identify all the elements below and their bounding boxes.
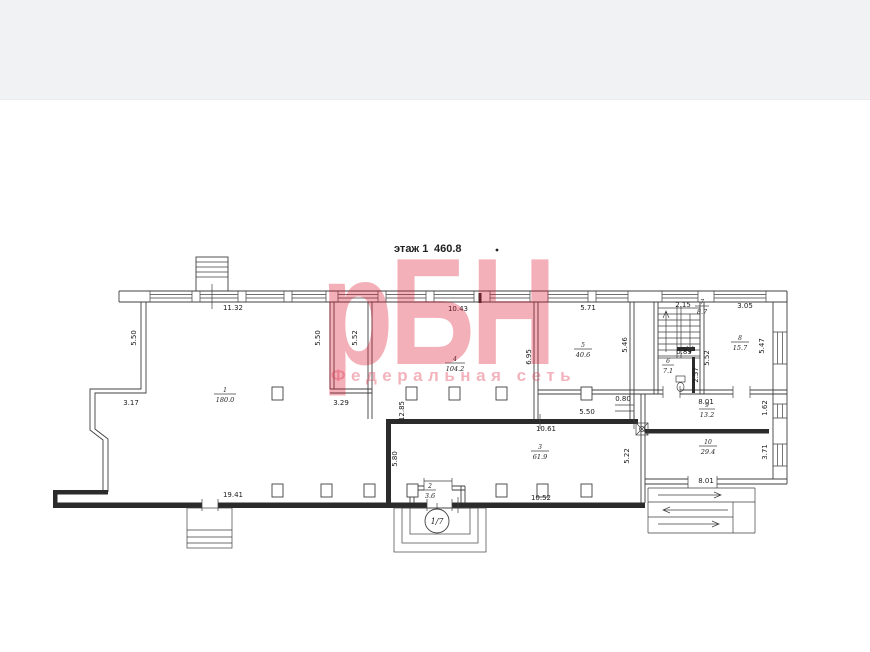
dim: 0.89 [676,348,692,356]
dim: 12.85 [398,401,406,421]
dim: 5.47 [758,338,766,354]
svg-text:2: 2 [427,483,432,490]
dim: 8.01 [698,477,714,485]
toilet-icon [676,376,685,392]
section-marker-label: 1/7 [431,517,445,526]
room-label-1: 1 180.0 [214,387,236,404]
dim: 2.57 [692,367,700,383]
interior-walls [330,291,787,503]
svg-text:5: 5 [581,342,585,349]
hatched-wall [645,429,769,434]
svg-text:3.6: 3.6 [425,492,435,500]
entrance-ramp [648,488,755,533]
dim: 10.43 [448,305,468,313]
dim: 3.71 [761,444,769,460]
room-label-2: 2 3.6 [424,483,436,500]
room-label-8: 8 15.7 [731,335,749,352]
svg-text:7.1: 7.1 [663,367,673,375]
room-labels: 1 180.0 4 104.2 5 40.6 7 8.7 8 15.7 6 7.… [214,299,749,500]
dim: 5.52 [351,330,359,346]
dim: 6.95 [525,349,533,365]
floor-plan-image: этаж 1 460.8 [0,0,870,652]
top-porch-steps [196,257,228,309]
svg-text:3: 3 [538,444,542,451]
svg-text:15.7: 15.7 [733,344,748,352]
dim: 11.32 [223,304,243,312]
room-label-3: 3 61.9 [531,444,549,461]
svg-text:9: 9 [705,402,709,409]
dim: 5.52 [703,350,711,366]
ramp-arrow-right-icon [658,492,721,498]
columns [272,387,592,497]
dim: 5.22 [623,448,631,464]
window-glyphs [150,295,766,299]
dim: 3.05 [737,302,753,310]
dim-tick-bold [479,293,482,303]
svg-text:61.9: 61.9 [533,453,547,461]
dim: 2.15 [675,301,691,309]
svg-text:10: 10 [704,439,712,446]
dim: 10.61 [536,425,556,433]
dim: 3.29 [333,399,349,407]
side-porch-steps [187,508,232,548]
entrance-steps [394,508,486,552]
dim: 5.46 [621,337,629,353]
svg-text:8.7: 8.7 [697,308,708,316]
room-label-4: 4 104.2 [445,356,465,373]
room-label-5: 5 40.6 [574,342,592,359]
floor-label: этаж 1 [394,243,428,255]
svg-text:7: 7 [700,299,704,306]
dim: 1.62 [761,400,769,416]
svg-text:4: 4 [452,356,457,363]
total-area-label: 460.8 [434,243,462,255]
stair-up-arrow-icon [663,311,669,352]
ramp-arrow-left-icon [663,507,728,513]
svg-text:180.0: 180.0 [216,396,235,404]
svg-text:40.6: 40.6 [575,351,590,359]
title-dot [496,249,499,252]
dim: 0.80 [615,395,631,403]
dim: 10.52 [531,494,551,502]
svg-text:104.2: 104.2 [446,365,465,373]
dim: 19.41 [223,491,243,499]
floor-plan: этаж 1 460.8 [0,0,870,652]
svg-text:8: 8 [738,335,742,342]
room-label-6: 6 7.1 [662,358,674,375]
room-label-10: 10 29.4 [699,439,717,456]
bottom-wall [53,497,645,513]
svg-text:1: 1 [223,387,227,394]
svg-text:13.2: 13.2 [700,411,714,419]
right-windows [773,332,787,466]
plan-title: этаж 1 460.8 [394,243,498,255]
dim: 5.50 [130,330,138,346]
dim: 5.50 [579,408,595,416]
svg-text:6: 6 [666,358,670,365]
svg-text:29.4: 29.4 [700,448,715,456]
dim: 5.71 [580,304,596,312]
ramp-arrow-right-icon [658,521,719,527]
duct-niche [615,405,634,411]
dim: 5.50 [314,330,322,346]
dim: 3.17 [123,399,139,407]
dim: 5.80 [391,451,399,467]
